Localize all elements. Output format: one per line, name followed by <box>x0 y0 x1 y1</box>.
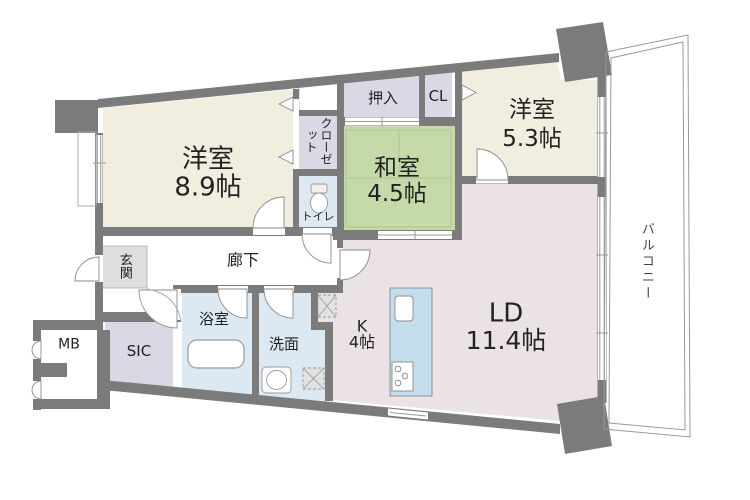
floorplan: 洋室 8.9帖 和室 4.5帖 洋室 5.3帖 LD 11.4帖 K 4帖 押入… <box>0 0 750 500</box>
mb-left-wall-a <box>33 320 41 341</box>
label-ld-size: 11.4帖 <box>466 328 547 354</box>
washbasin-bowl <box>267 371 287 390</box>
label-balcony: バルコニー <box>639 214 653 310</box>
label-cl: CL <box>429 89 448 105</box>
label-main-bedroom-name: 洋室 <box>182 146 234 173</box>
door-mb-lower <box>32 381 41 399</box>
door-toilet <box>302 234 331 263</box>
pillar-top-right <box>556 22 612 82</box>
label-kitchen-size: 4帖 <box>349 335 375 352</box>
label-second-bedroom-name: 洋室 <box>509 98 555 122</box>
label-toilet: トイレ <box>302 211 335 223</box>
washer-pan <box>303 368 324 389</box>
side-ledge-outline <box>78 132 96 206</box>
closet-niche <box>299 84 338 113</box>
pillar-top-left <box>55 100 98 133</box>
label-oshiire: 押入 <box>368 91 398 107</box>
laundry-pan <box>318 295 336 317</box>
closet-toilet-band <box>299 169 338 176</box>
label-tatami-size: 4.5帖 <box>367 182 427 206</box>
label-main-bedroom-size: 8.9帖 <box>174 174 241 201</box>
bathtub <box>188 340 244 368</box>
label-bathroom: 浴室 <box>199 312 229 328</box>
label-washroom: 洗面 <box>269 337 299 353</box>
oshiire-cl-wall <box>419 75 425 117</box>
mb-left-wall-b <box>33 359 41 381</box>
label-second-bedroom-size: 5.3帖 <box>502 127 562 151</box>
kitchen-sink <box>395 296 413 321</box>
label-ld-name: LD <box>489 300 524 327</box>
label-genkan: 玄関 <box>117 249 131 283</box>
door-entrance <box>75 257 99 281</box>
label-tatami-name: 和室 <box>374 156 420 180</box>
label-closet: クローゼット <box>303 112 333 170</box>
washroom-nook-wall <box>311 285 318 322</box>
mb-step-wall <box>41 363 67 377</box>
label-corridor: 廊下 <box>227 253 259 270</box>
mb-right-wall <box>97 330 110 409</box>
mb-top-wall <box>33 320 103 330</box>
label-sic: SIC <box>127 344 151 360</box>
washroom-kitchen-wall <box>325 330 333 401</box>
toilet-tank <box>311 184 327 193</box>
tatami-right-wall <box>455 64 462 240</box>
door-mb-upper <box>32 341 41 359</box>
washroom-nook-band <box>311 322 333 330</box>
floorplan-drawing <box>0 0 750 500</box>
bath-washroom-wall <box>252 293 259 396</box>
closet-block-right-wall <box>337 75 344 240</box>
label-meter-box: MB <box>58 338 80 353</box>
